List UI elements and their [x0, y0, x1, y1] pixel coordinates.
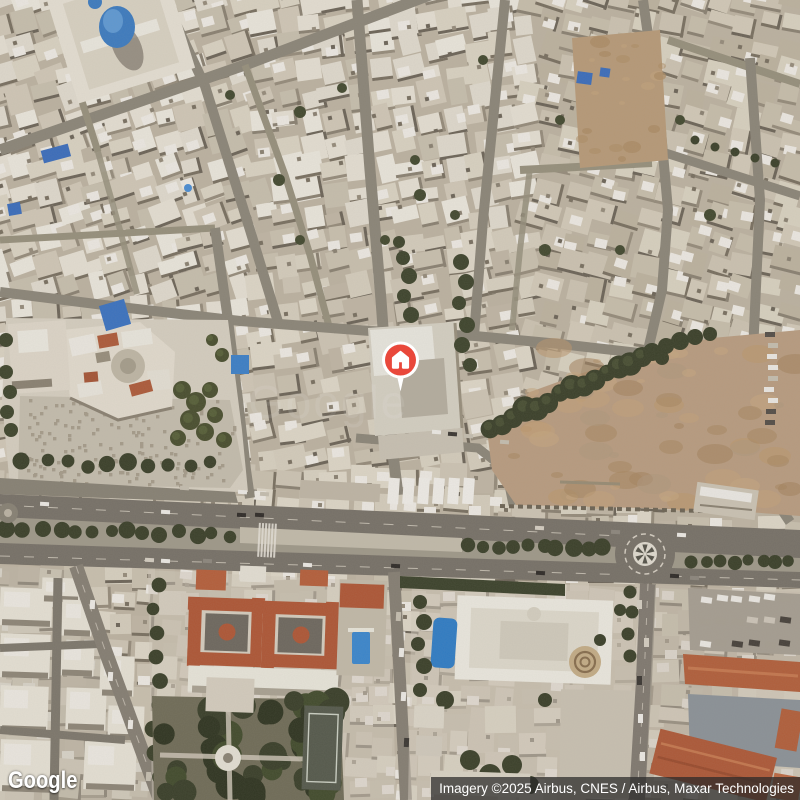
svg-text:Google: Google	[248, 376, 408, 428]
